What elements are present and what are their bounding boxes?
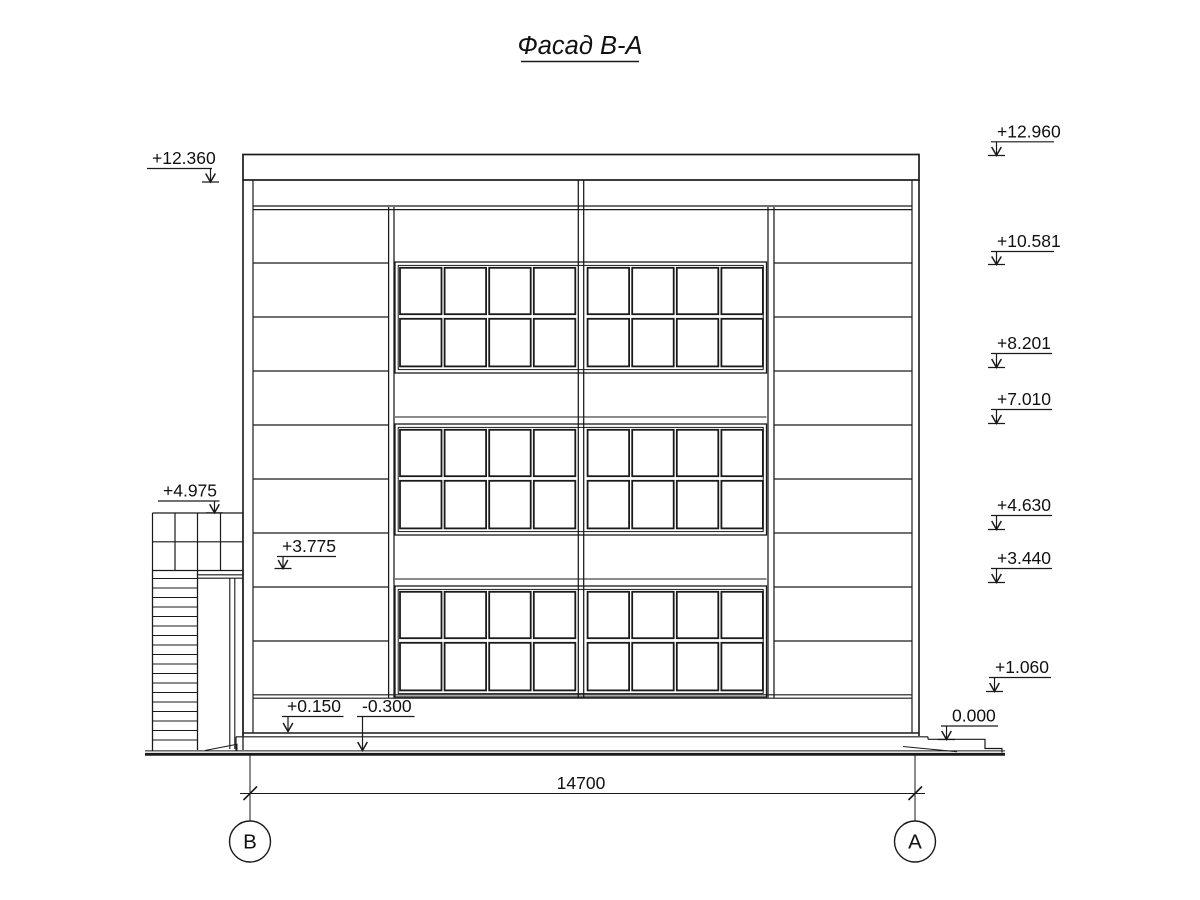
elevation-mark-12360: +12.360 [147,148,219,182]
facade-drawing: Фасад В-А [0,0,1200,900]
top-band-lines [253,206,912,210]
title-text: Фасад В-А [517,32,642,60]
left-pilaster-lines [253,263,389,641]
facade-linework [253,180,912,698]
threshold-ramp [205,744,237,750]
building-outline [236,155,1002,753]
svg-text:+0.150: +0.150 [287,696,341,716]
right-pilaster-lines [774,263,912,641]
svg-text:+8.201: +8.201 [997,333,1051,353]
elevation-mark-12960: +12.960 [988,121,1061,155]
window-band-3 [395,586,767,697]
window-band-2 [395,424,767,535]
svg-text:+12.960: +12.960 [997,121,1061,141]
elevation-mark-0000: 0.000 [938,706,998,740]
plinth [236,737,928,751]
elevation-mark-minus0300: -0.300 [357,696,415,751]
svg-text:+7.010: +7.010 [997,389,1051,409]
svg-text:+12.360: +12.360 [152,148,216,168]
parapet [243,155,919,181]
stair-glazing-grid [153,513,244,571]
stair-treads [153,579,198,741]
elevation-mark-3775: +3.775 [275,536,337,569]
elevation-mark-7010: +7.010 [988,389,1052,424]
axis-label-b: В [243,831,257,854]
elevation-mark-8201: +8.201 [988,333,1052,368]
window-band-1 [395,262,767,373]
svg-text:0.000: 0.000 [952,706,996,726]
svg-text:-0.300: -0.300 [362,696,412,716]
stair-tower [153,513,244,751]
door-frame [230,578,235,749]
dimension-value: 14700 [557,773,606,793]
elevation-mark-4630: +4.630 [988,495,1052,530]
elevation-mark-4975: +4.975 [158,481,223,513]
svg-text:+3.775: +3.775 [282,536,336,556]
door-head [198,575,244,578]
dimension-row: 14700 В А [230,756,936,863]
elevation-marks-left: +12.360 +4.975 +3.775 +0.150 -0.300 [147,148,415,751]
elevation-marks-right: +12.960 +10.581 +8.201 +7.010 +4.630 +3.… [938,121,1061,739]
window-zone-verticals [389,207,774,698]
elevation-mark-10581: +10.581 [988,231,1061,265]
svg-text:+3.440: +3.440 [997,548,1051,568]
sill-lines [395,417,767,579]
elevation-mark-0150: +0.150 [282,696,344,732]
svg-text:+10.581: +10.581 [997,231,1061,251]
elevation-mark-3440: +3.440 [988,548,1052,583]
svg-text:+4.975: +4.975 [163,481,217,501]
drawing-sheet: Фасад В-А [0,0,1200,900]
drawing-title: Фасад В-А [517,32,642,62]
central-mullion [578,180,583,698]
ground-line [145,751,1005,754]
svg-text:+4.630: +4.630 [997,495,1051,515]
elevation-mark-1060: +1.060 [986,657,1051,692]
axis-label-a: А [908,831,922,854]
svg-text:+1.060: +1.060 [995,657,1049,677]
